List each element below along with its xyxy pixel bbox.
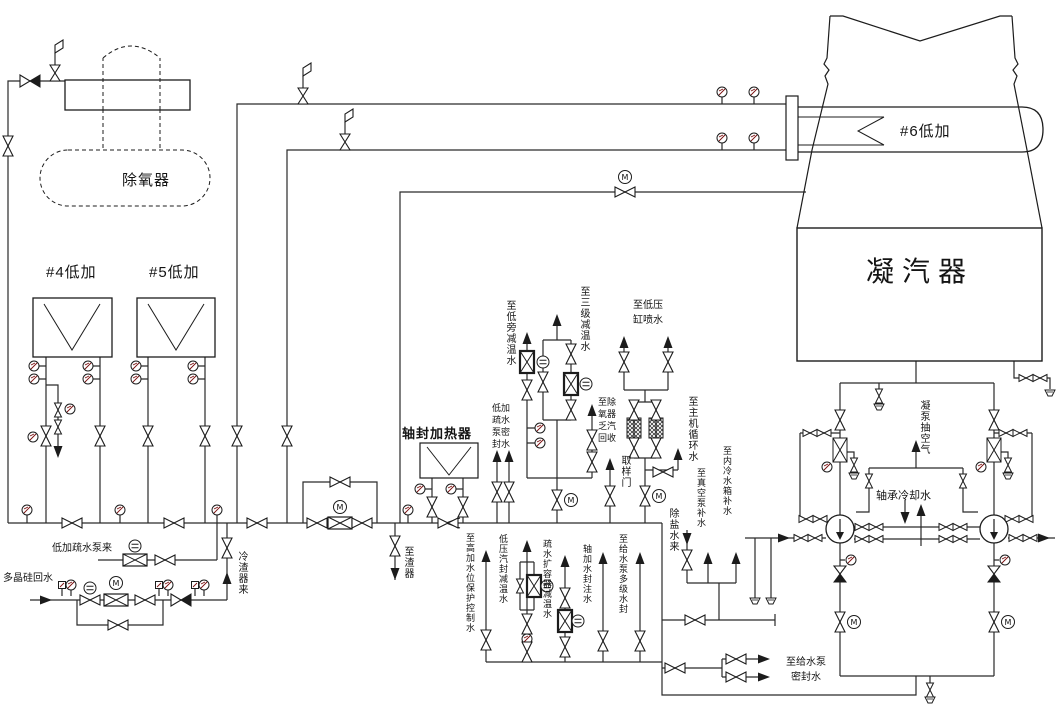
to-deaerator-exhaust-recovery-label: 至除氧器乏汽回收 bbox=[597, 396, 617, 445]
gate-valve-icon bbox=[247, 518, 267, 528]
spray-strainer-b bbox=[649, 418, 663, 438]
gate-valve-icon bbox=[164, 518, 184, 528]
gate-valve-icon bbox=[352, 518, 372, 528]
gate-valve-icon bbox=[566, 344, 576, 364]
flow-arrow-icon bbox=[599, 552, 608, 564]
gland-heater-label: 轴封加热器 bbox=[402, 423, 472, 442]
drain-valve-icon bbox=[1033, 375, 1047, 382]
drain-funnel-icon bbox=[925, 697, 935, 703]
drain-arrow-icon bbox=[54, 446, 63, 458]
flow-arrow-icon bbox=[636, 552, 645, 564]
drain-flash-tank-spray-label: 疏水扩容器减温水 bbox=[542, 539, 551, 619]
fl flow-arrow-icon bbox=[391, 568, 400, 580]
motor-letter: M bbox=[113, 579, 120, 588]
gate-valve-icon bbox=[651, 438, 661, 458]
gauge-icon bbox=[199, 580, 209, 590]
to-main-circ-water-label: 至主机循环水 bbox=[686, 396, 696, 462]
gate-valve-icon bbox=[835, 410, 845, 430]
sampling-valve-label: 取样门 bbox=[619, 455, 629, 488]
control-valve-icon bbox=[564, 373, 578, 395]
gate-valve-icon bbox=[869, 536, 883, 543]
gate-valve-icon bbox=[808, 535, 822, 542]
lp6-flange bbox=[786, 96, 798, 160]
deaerator-column bbox=[103, 46, 160, 148]
gate-valve-icon bbox=[866, 474, 873, 488]
deaerator-header bbox=[65, 80, 190, 110]
gate-valve-icon bbox=[55, 403, 62, 417]
actuator-icon bbox=[572, 615, 584, 627]
to-stage3-spray-label: 至三级减温水 bbox=[578, 286, 588, 352]
drain-funnel-icon bbox=[874, 404, 884, 410]
gate-valve-icon bbox=[492, 482, 502, 502]
bearing-cooling-water-label: 轴承冷却水 bbox=[876, 487, 931, 503]
to-lp-bypass-spray-label: 至低旁减温水 bbox=[504, 300, 514, 366]
gate-valve-icon bbox=[55, 420, 62, 434]
gate-valve-icon bbox=[522, 380, 532, 400]
gate-valve-icon bbox=[232, 426, 242, 446]
lp-heater-5-tubes bbox=[148, 304, 204, 350]
gauge-icon bbox=[1000, 555, 1010, 565]
gate-valve-icon bbox=[953, 536, 967, 543]
control-valve-icon bbox=[558, 610, 572, 632]
gate-valve-icon bbox=[635, 631, 645, 651]
gate-valve-icon bbox=[390, 536, 400, 556]
gate-valve-icon bbox=[799, 516, 813, 523]
motor-valve-icon bbox=[835, 612, 845, 632]
gate-valve-icon bbox=[803, 430, 817, 437]
gate-valve-icon bbox=[855, 536, 869, 543]
drain-funnel-icon bbox=[849, 473, 859, 479]
flow-arrow-icon bbox=[758, 655, 770, 664]
gate-valve-icon bbox=[939, 524, 953, 531]
control-valve-icon bbox=[527, 575, 541, 597]
motor-letter: M bbox=[337, 503, 344, 512]
temperature-gauge-icon bbox=[446, 484, 456, 494]
gauge-icon bbox=[65, 404, 75, 414]
drain-funnel-icon bbox=[1003, 473, 1013, 479]
flow-arrow-icon bbox=[523, 332, 532, 344]
gate-valve-icon bbox=[587, 430, 597, 450]
gate-valve-icon bbox=[869, 524, 883, 531]
gate-valve-icon bbox=[663, 352, 673, 372]
gate-valve-icon bbox=[504, 482, 514, 502]
polysilicon-return-label: 多晶硅回水 bbox=[3, 569, 53, 584]
gate-valve-icon bbox=[605, 486, 615, 506]
condenser-label: 凝汽器 bbox=[866, 250, 974, 290]
lp-heater-6-label: #6低加 bbox=[900, 120, 951, 141]
flow-arrow-icon bbox=[553, 314, 562, 326]
control-valve-icon bbox=[328, 517, 352, 529]
gate-valve-icon bbox=[438, 518, 458, 528]
condensate-pump-icon bbox=[980, 515, 1008, 543]
drain-funnel-icon bbox=[766, 598, 776, 604]
motor-letter: M bbox=[1005, 618, 1012, 627]
gland-heater-tubes bbox=[427, 447, 471, 475]
temperature-gauge-icon bbox=[212, 505, 222, 515]
drain-valve-icon bbox=[1019, 375, 1033, 382]
gauge-icon bbox=[976, 462, 986, 472]
flow-arrow-icon bbox=[620, 336, 629, 348]
from-slag-cooler-label: 冷渣器来 bbox=[236, 551, 246, 595]
condenser-neck-left bbox=[797, 16, 830, 228]
pressure-gauge-icon bbox=[717, 87, 727, 97]
temperature-gauge-icon bbox=[415, 484, 425, 494]
pressure-gauge-icon bbox=[59, 582, 66, 589]
pressure-gauge-icon bbox=[717, 133, 727, 143]
gate-valve-icon bbox=[560, 637, 570, 657]
flow-arrow-icon bbox=[588, 404, 597, 416]
gate-valve-icon bbox=[939, 536, 953, 543]
cond-pump-air-extraction-label: 凝泵抽空气 bbox=[918, 400, 928, 455]
temperature-gauge-icon bbox=[403, 505, 413, 515]
gate-valve-icon bbox=[682, 550, 692, 570]
gate-valve-icon bbox=[665, 663, 685, 673]
gauge-icon bbox=[535, 438, 545, 448]
check-valve-icon bbox=[834, 566, 846, 582]
vent-valve-icon bbox=[340, 109, 353, 150]
drain-valve-icon bbox=[851, 458, 858, 472]
to-hp-heater-level-ctrl-label: 至高加水位保护控制水 bbox=[465, 533, 474, 633]
gate-valve-icon bbox=[653, 467, 673, 477]
gate-valve-icon bbox=[855, 524, 869, 531]
gate-valve-icon bbox=[1023, 535, 1037, 542]
gate-valve-icon bbox=[726, 672, 746, 682]
gate-valve-icon bbox=[726, 654, 746, 664]
gate-valve-icon bbox=[619, 352, 629, 372]
flow-arrow-icon bbox=[683, 533, 692, 545]
motor-letter: M bbox=[568, 496, 575, 505]
lp-heater-4-shell bbox=[33, 298, 112, 357]
flow-arrow-icon bbox=[664, 336, 673, 348]
gate-valve-icon bbox=[222, 538, 232, 558]
gauge-icon bbox=[131, 361, 141, 371]
gate-valve-icon bbox=[1005, 516, 1019, 523]
gauge-icon bbox=[83, 374, 93, 384]
lp-drain-pump-seal-water-label: 低加疏水泵密封水 bbox=[491, 402, 511, 451]
gate-valve-icon bbox=[794, 535, 808, 542]
flow-arrow-icon bbox=[606, 458, 615, 470]
gate-valve-icon bbox=[135, 595, 155, 605]
flow-arrow-icon bbox=[493, 450, 502, 462]
gate-valve-icon bbox=[307, 518, 327, 528]
actuator-icon bbox=[84, 582, 96, 594]
lp-heater-5-shell bbox=[137, 298, 215, 357]
flow-arrow-icon bbox=[523, 540, 532, 552]
gate-valve-icon bbox=[560, 588, 570, 608]
gauge-icon bbox=[29, 361, 39, 371]
flow-arrow-icon bbox=[482, 550, 491, 562]
gate-valve-icon bbox=[813, 516, 827, 523]
to-feed-pump-seal-water-label: 至给水泵 密封水 bbox=[781, 653, 831, 683]
equipment-shapes bbox=[33, 16, 1043, 478]
gate-valve-icon bbox=[685, 615, 705, 625]
motor-valve-icon bbox=[989, 612, 999, 632]
gate-valve-icon bbox=[458, 497, 468, 517]
bypass-valve-icon bbox=[330, 477, 350, 487]
drain-funnel-icon bbox=[1045, 390, 1055, 396]
pid-diagram: M M bbox=[0, 0, 1058, 705]
lp-heater-5-label: #5低加 bbox=[149, 261, 200, 282]
valves-and-instruments: M M bbox=[3, 40, 1055, 703]
gland-heater-shell bbox=[420, 443, 478, 478]
gate-valve-icon bbox=[566, 400, 576, 420]
gate-valve-icon bbox=[651, 400, 661, 420]
to-inner-cooling-tank-makeup-label: 至内冷水箱补水 bbox=[722, 446, 731, 516]
gate-valve-icon bbox=[953, 524, 967, 531]
drain-valve-icon bbox=[1005, 458, 1012, 472]
gate-valve-icon bbox=[989, 410, 999, 430]
from-lp-drain-pump-label: 低加疏水泵来 bbox=[52, 539, 112, 554]
gauge-icon bbox=[535, 423, 545, 433]
check-valve-icon bbox=[988, 566, 1000, 582]
drain-funnel-icon bbox=[750, 598, 760, 604]
gate-valve-icon bbox=[538, 372, 548, 392]
gland-heater-seal-fill-label: 轴加水封注水 bbox=[582, 544, 591, 604]
gate-valve-icon bbox=[522, 614, 532, 634]
gauge-icon bbox=[188, 374, 198, 384]
control-valve-icon bbox=[104, 594, 128, 606]
main-piping bbox=[8, 73, 1055, 695]
check-valve-icon bbox=[20, 75, 40, 87]
flow-arrow-icon bbox=[704, 552, 713, 564]
actuator-icon bbox=[129, 540, 141, 552]
lp-heater-4-label: #4低加 bbox=[46, 261, 97, 282]
control-valve-icon bbox=[123, 554, 147, 566]
control-valve-icon bbox=[520, 351, 534, 373]
spray-strainer-a bbox=[627, 418, 641, 438]
gate-valve-icon bbox=[817, 430, 831, 437]
motor-letter: M bbox=[656, 492, 663, 501]
condensate-pump-icon bbox=[826, 515, 854, 543]
gate-valve-icon bbox=[960, 474, 967, 488]
flow-arrow-icon bbox=[778, 534, 790, 543]
to-lp-cylinder-spray-label: 至低压 缸喷水 bbox=[630, 296, 666, 326]
vent-valve-icon bbox=[50, 40, 63, 81]
motor-letter: M bbox=[622, 173, 629, 182]
gauge-icon bbox=[188, 361, 198, 371]
flow-arrow-icon bbox=[917, 504, 926, 516]
piping-layer: M M bbox=[0, 0, 1058, 705]
gate-valve-icon bbox=[95, 426, 105, 446]
gauge-icon bbox=[846, 555, 856, 565]
drain-valve-icon bbox=[927, 683, 934, 697]
gate-valve-icon bbox=[155, 555, 175, 565]
flow-arrow-icon bbox=[674, 448, 683, 460]
gate-valve-icon bbox=[517, 579, 524, 593]
gate-valve-icon bbox=[1013, 430, 1027, 437]
to-slag-unit-label: 至渣器 bbox=[402, 546, 412, 579]
gate-valve-icon bbox=[629, 438, 639, 458]
gauge-icon bbox=[131, 374, 141, 384]
gate-valve-icon bbox=[1019, 516, 1033, 523]
gate-valve-icon bbox=[80, 595, 100, 605]
gate-valve-icon bbox=[598, 631, 608, 651]
gate-valve-icon bbox=[427, 497, 437, 517]
lp6-tubes bbox=[798, 117, 884, 145]
gate-valve-icon bbox=[587, 452, 597, 472]
actuator-icon bbox=[580, 378, 592, 390]
to-feed-pump-multistage-seal-label: 至给水泵多级水封 bbox=[618, 534, 627, 614]
flow-arrow-icon bbox=[758, 673, 770, 682]
gauge-icon bbox=[28, 432, 38, 442]
temperature-gauge-icon bbox=[115, 505, 125, 515]
condenser-neck-right bbox=[1012, 16, 1042, 228]
gauge-icon bbox=[822, 462, 832, 472]
gate-valve-icon bbox=[143, 426, 153, 446]
pressure-gauge-icon bbox=[156, 582, 163, 589]
flow-arrow-icon bbox=[505, 450, 514, 462]
motor-valve-icon bbox=[615, 187, 635, 197]
gauge-icon bbox=[163, 580, 173, 590]
bypass-valve-icon bbox=[108, 620, 128, 630]
drain-valve-icon bbox=[876, 389, 883, 403]
temperature-gauge-icon bbox=[749, 133, 759, 143]
gate-valve-icon bbox=[1009, 535, 1023, 542]
flow-arrow-icon bbox=[40, 596, 52, 605]
gate-valve-icon bbox=[522, 642, 532, 662]
check-valve-icon bbox=[171, 594, 191, 606]
flow-arrow-icon bbox=[561, 555, 570, 567]
flow-arrow-icon bbox=[901, 512, 910, 524]
flow-arrow-icon bbox=[223, 572, 232, 584]
condenser-shell bbox=[797, 228, 1042, 361]
temperature-gauge-icon bbox=[22, 505, 32, 515]
actuator-icon bbox=[537, 356, 549, 368]
gauge-icon bbox=[83, 361, 93, 371]
motor-valve-icon bbox=[552, 490, 562, 510]
pressure-gauge-icon bbox=[192, 582, 199, 589]
gate-valve-icon bbox=[62, 518, 82, 528]
gauge-icon bbox=[66, 580, 76, 590]
motor-valve-icon bbox=[640, 486, 650, 506]
gate-valve-icon bbox=[3, 136, 13, 156]
demin-water-in-label: 除盐水来 bbox=[667, 508, 677, 552]
vent-valve-icon bbox=[298, 63, 311, 104]
flow-arrow-icon bbox=[1038, 534, 1050, 543]
gauge-icon bbox=[29, 374, 39, 384]
lp-gland-spray-water-label: 低压汽封减温水 bbox=[498, 534, 507, 604]
motor-letter: M bbox=[851, 618, 858, 627]
temperature-gauge-icon bbox=[749, 87, 759, 97]
gate-valve-icon bbox=[200, 426, 210, 446]
to-vacuum-pump-makeup-label: 至真空泵补水 bbox=[696, 468, 705, 528]
flow-arrow-icon bbox=[732, 552, 741, 564]
gate-valve-icon bbox=[629, 400, 639, 420]
gate-valve-icon bbox=[999, 430, 1013, 437]
gate-valve-icon bbox=[282, 426, 292, 446]
condenser-neck-top bbox=[830, 16, 1012, 41]
gate-valve-icon bbox=[41, 426, 51, 446]
gate-valve-icon bbox=[481, 630, 491, 650]
lp-heater-4-tubes bbox=[44, 304, 100, 350]
deaerator-label: 除氧器 bbox=[122, 169, 170, 190]
